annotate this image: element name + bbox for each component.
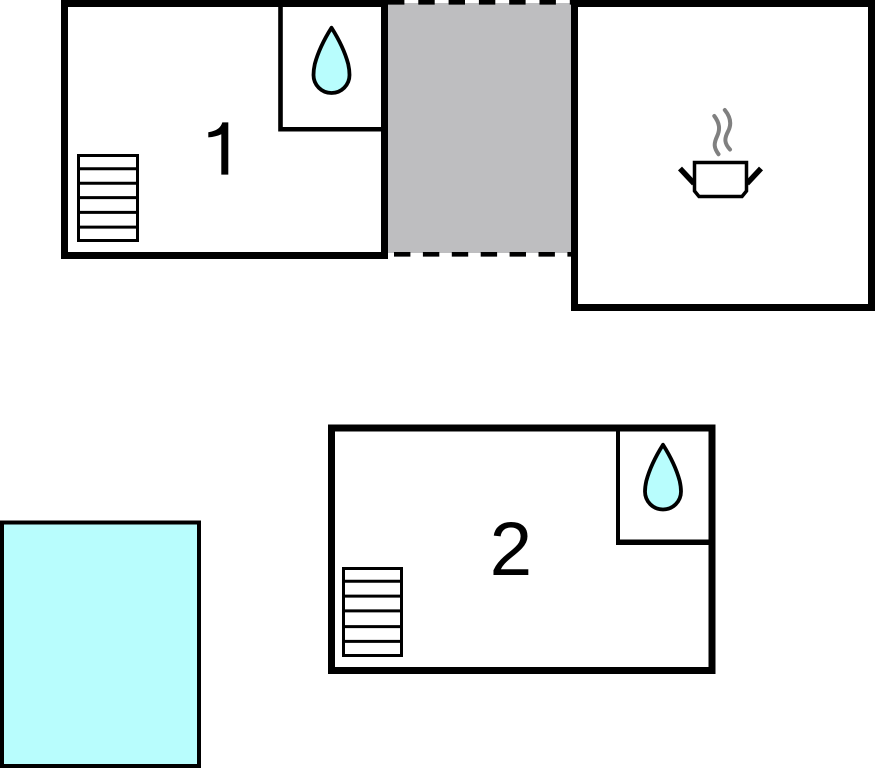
svg-text:2: 2 [490, 507, 533, 592]
